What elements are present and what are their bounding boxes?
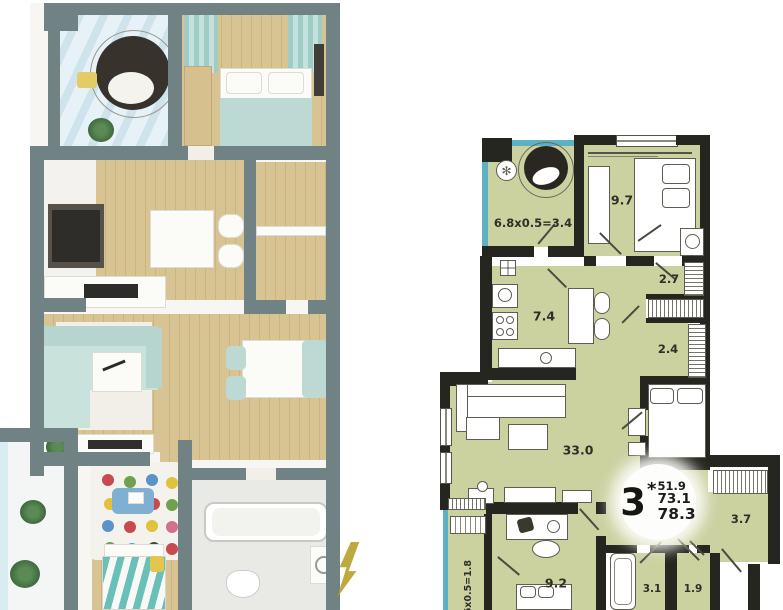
wall-segment	[646, 318, 708, 323]
room-label-hallway: 3.7	[731, 512, 751, 526]
kitchen-chair	[594, 292, 610, 314]
stove-icon	[492, 312, 518, 340]
pillow	[650, 388, 674, 404]
window-living-1	[440, 408, 452, 446]
wall-segment	[768, 467, 780, 564]
sink-bowl	[498, 288, 512, 302]
wall-segment	[605, 545, 637, 553]
floorplan-screenshot: ✻	[0, 0, 783, 610]
curtain-rail-line	[588, 152, 692, 154]
lamp-icon	[477, 481, 488, 492]
room-label-balcony-left: .6x0.5=1.8	[463, 548, 474, 610]
wall-segment	[748, 564, 760, 610]
room-label-closet-lower: 2.4	[658, 342, 678, 356]
sofa-icon-chaise	[466, 417, 500, 440]
wall-segment	[486, 502, 578, 514]
faucet-icon	[540, 352, 552, 364]
bathtub-inner-line	[614, 558, 632, 605]
burner	[506, 328, 514, 336]
cabinet-icon	[562, 490, 592, 503]
kitchen-chair	[594, 318, 610, 340]
nightstand-icon	[628, 442, 646, 456]
desk-chair-icon	[532, 540, 560, 558]
vent-shaft-icon	[500, 260, 516, 276]
asterisk: *	[647, 479, 656, 500]
wall-segment	[584, 135, 616, 145]
radiator-icon	[450, 516, 486, 534]
wall-segment	[486, 368, 576, 380]
curtain-rail-line-2	[588, 156, 658, 157]
flower-icon: ✻	[496, 160, 517, 181]
sofa-icon-seat	[466, 396, 566, 418]
wall-segment	[480, 256, 492, 372]
coffee-table-icon	[508, 424, 548, 450]
wall-segment	[482, 138, 512, 162]
kitchen-table-icon	[568, 288, 594, 344]
wardrobe-hatch-lower	[688, 324, 706, 378]
washer-icon	[685, 234, 700, 249]
room-wc	[677, 553, 710, 610]
wall-segment	[440, 386, 450, 510]
room-hallway-37	[708, 492, 768, 562]
room-label-balcony-top: 6.8x0.5=3.4	[494, 216, 572, 230]
glazing-left-bottom	[443, 504, 448, 610]
pillow	[662, 188, 690, 208]
room-label-study: 9.2	[545, 576, 567, 591]
sideboard-icon	[504, 487, 556, 503]
wardrobe-hatch-mid	[648, 299, 704, 318]
wardrobe-hatch-hallway	[713, 470, 768, 494]
wall-segment	[596, 502, 606, 514]
wall-segment	[700, 455, 780, 467]
burner	[506, 316, 514, 324]
pillow	[520, 586, 536, 598]
burner	[496, 328, 504, 336]
room-label-living: 33.0	[563, 443, 594, 458]
window-bedroom	[616, 135, 678, 147]
pillow	[662, 164, 690, 184]
wall-segment	[710, 553, 720, 610]
area-figures: 51.9 73.1 78.3	[657, 481, 695, 522]
mug-icon	[547, 520, 560, 533]
apartment-summary-badge: 3 * 51.9 73.1 78.3	[620, 464, 696, 540]
burner	[496, 316, 504, 324]
drying-rack-icon	[448, 498, 486, 510]
room-count: 3	[620, 484, 646, 521]
room-label-bedroom: 9.7	[611, 193, 633, 208]
wall-segment	[665, 553, 677, 610]
plan-2d-drawing: ✻	[0, 0, 783, 610]
kitchen-counter-bottom	[498, 348, 576, 368]
total-area-value: 78.3	[657, 507, 695, 523]
pillow	[677, 388, 703, 404]
wall-segment	[626, 256, 654, 266]
room-label-closet-upper: 2.7	[659, 272, 679, 286]
room-label-wc: 1.9	[684, 583, 703, 595]
room-label-bathroom: 3.1	[643, 583, 662, 595]
wall-segment	[584, 256, 596, 266]
glazing-left-top	[482, 160, 488, 248]
room-label-kitchen: 7.4	[533, 309, 555, 324]
wardrobe-hatch-upper	[684, 262, 704, 296]
wall-segment	[640, 384, 648, 410]
wall-segment	[574, 135, 584, 256]
window-living-2	[440, 452, 452, 484]
